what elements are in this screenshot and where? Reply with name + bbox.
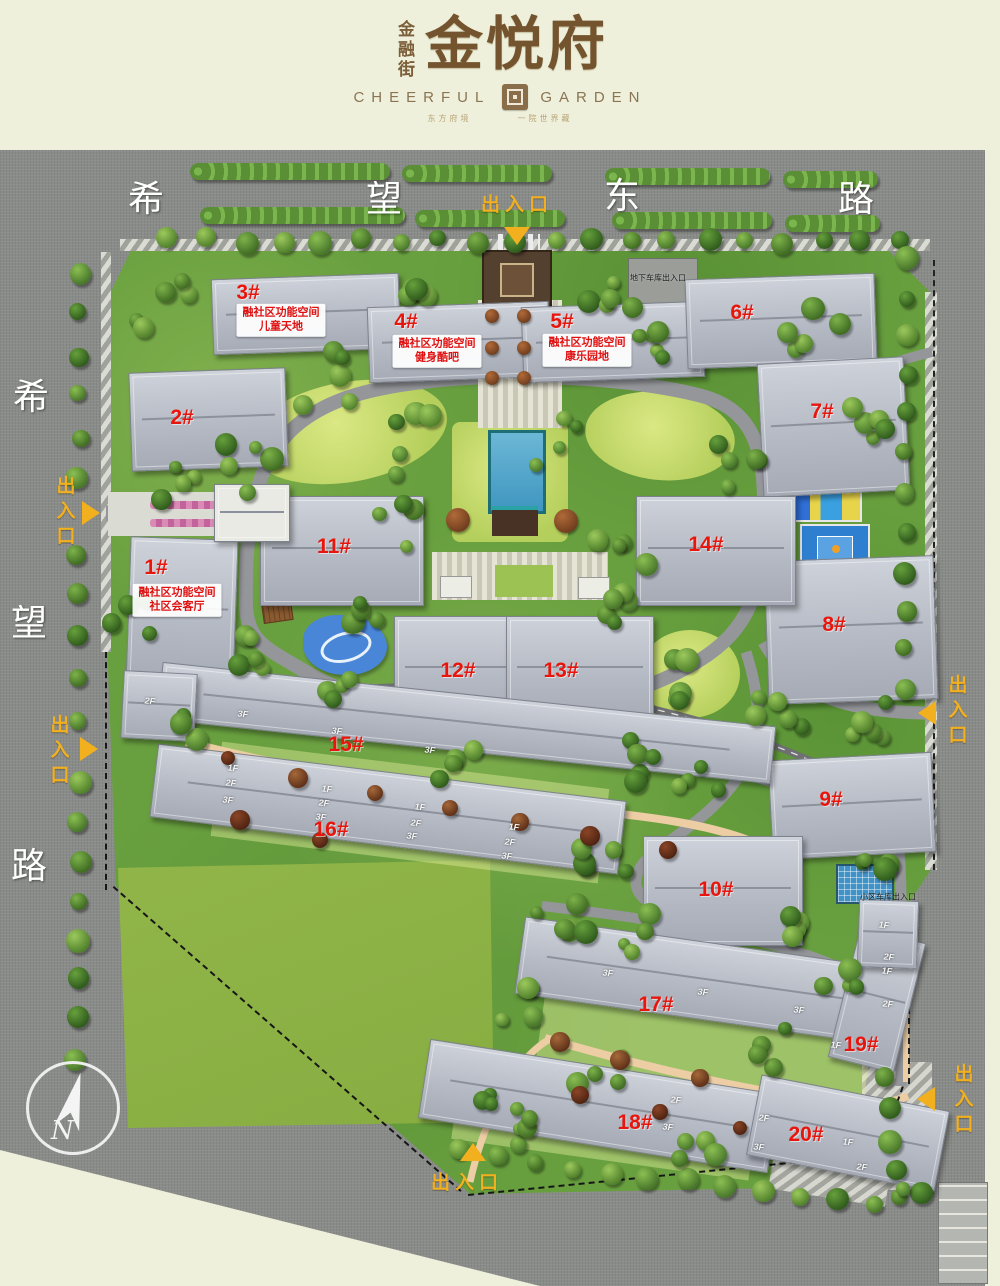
planter-large [446, 508, 470, 532]
entrance-arrow-left-icon [917, 1087, 935, 1111]
building-label-10: 10# [698, 878, 733, 902]
tree [886, 1160, 907, 1181]
tree [529, 458, 543, 472]
building-label-3: 3# [236, 281, 259, 305]
garage-entrance-label: 地下车库出入口 [630, 273, 686, 284]
tree [495, 1013, 509, 1027]
floor-label: 3F [753, 1142, 766, 1153]
parking-stalls [938, 1182, 988, 1284]
tree [170, 712, 193, 735]
tree [175, 475, 191, 491]
entrance-arrow-down-icon [504, 227, 530, 245]
tree [400, 540, 413, 553]
tree [779, 710, 797, 728]
tree [635, 553, 658, 576]
tree [612, 538, 626, 552]
building-label-19: 19# [843, 1033, 878, 1057]
floor-label: 3F [222, 795, 235, 806]
floor-label: 1F [881, 966, 894, 977]
central-pool [488, 430, 546, 514]
tree [570, 420, 583, 433]
tree [897, 601, 918, 622]
tree [721, 452, 736, 467]
floor-label: 1F [414, 802, 427, 813]
floor-label: 3F [602, 968, 615, 979]
compass-north-letter: N [51, 1116, 74, 1146]
tree [791, 1188, 809, 1206]
tree [248, 651, 264, 667]
entrance-label: 出入口 [45, 715, 72, 790]
tree [548, 232, 565, 249]
floor-label: 2F [504, 837, 517, 848]
tree [873, 857, 897, 881]
hedge-row [402, 165, 552, 182]
road-name-char: 希 [128, 170, 164, 222]
entrance-arrow-left-icon [918, 701, 936, 725]
amenity-line2: 社区会客厅 [139, 600, 216, 614]
brand-logo: 金融街 金悦府 CHEERFUL GARDEN 东方府境 一院世界藏 [0, 14, 1000, 124]
floor-label: 3F [406, 831, 419, 842]
planter-pot [517, 341, 531, 355]
floor-label: 2F [318, 798, 331, 809]
tree [659, 841, 677, 859]
tree [70, 263, 92, 285]
floor-label: 1F [830, 1040, 843, 1051]
right-margin [985, 150, 1000, 1286]
tree [151, 489, 172, 510]
tree [580, 228, 602, 250]
tree [329, 364, 352, 387]
tree [752, 1180, 774, 1202]
tree [70, 893, 86, 909]
amenity-box: 融社区功能空间健身酷吧 [393, 335, 482, 368]
tree [388, 414, 404, 430]
tree [610, 1074, 626, 1090]
tree [351, 228, 371, 248]
tree [826, 1188, 848, 1210]
floor-label: 3F [662, 1122, 675, 1133]
tree [671, 1150, 688, 1167]
brand-seal-icon [502, 84, 528, 110]
entrance-arrow-up-icon [460, 1143, 486, 1161]
tree [603, 589, 623, 609]
building-label-1: 1# [144, 556, 167, 580]
tree [709, 435, 728, 454]
tree [156, 227, 177, 248]
tree [69, 385, 86, 402]
building-label-20: 20# [788, 1123, 823, 1147]
garage-entrance-label: 小区车库出入口 [860, 892, 916, 903]
tree [230, 810, 250, 830]
tree [442, 800, 458, 816]
floor-label: 2F [670, 1095, 683, 1106]
building-label-11: 11# [317, 535, 351, 559]
brand-tagline-left: 东方府境 [428, 113, 472, 124]
tree [647, 321, 669, 343]
entrance-label: 出入口 [51, 476, 78, 551]
tree [215, 433, 238, 456]
entrance-label: 出入口 [949, 1064, 976, 1139]
tree [671, 778, 687, 794]
tree [341, 671, 358, 688]
hedge-row [190, 163, 390, 180]
tree [392, 446, 408, 462]
tree [875, 419, 895, 439]
tree [838, 958, 862, 982]
floor-label: 3F [315, 812, 328, 823]
entrance-label: 出入口 [481, 190, 553, 217]
floor-label: 2F [225, 778, 238, 789]
amenity-box: 融社区功能空间社区会客厅 [133, 584, 222, 617]
tree [186, 728, 209, 751]
tree [632, 329, 646, 343]
planter-pot [485, 371, 499, 385]
tree [155, 282, 176, 303]
tree [521, 1110, 538, 1127]
tree [801, 297, 825, 321]
tree [308, 231, 331, 254]
entrance-arrow-right-icon [80, 737, 98, 761]
amenity-line2: 儿童天地 [243, 320, 320, 334]
tree [67, 625, 88, 646]
tree [878, 1130, 902, 1154]
amenity-line1: 融社区功能空间 [549, 336, 626, 350]
road-name-char: 望 [11, 594, 47, 646]
tree [418, 404, 441, 427]
tree [464, 740, 484, 760]
entrance-arrow-right-icon [82, 501, 100, 525]
lawn-circle-southeast [640, 630, 740, 718]
building-label-6: 6# [730, 301, 753, 325]
tree [816, 232, 833, 249]
tree [878, 695, 893, 710]
tree [635, 1167, 658, 1190]
road-name-char: 东 [604, 167, 640, 219]
tree [814, 977, 833, 996]
building-label-2: 2# [170, 406, 193, 430]
amenity-line1: 融社区功能空间 [139, 586, 216, 600]
planter-large [554, 509, 578, 533]
floor-label: 1F [508, 822, 521, 833]
floor-label: 2F [856, 1162, 869, 1173]
tree [898, 523, 917, 542]
tree [444, 755, 461, 772]
tree [69, 348, 88, 367]
tree [746, 449, 766, 469]
brand-name-side: 金融街 [392, 20, 417, 80]
building-label-13: 13# [543, 659, 578, 683]
planter-pot [485, 341, 499, 355]
floor-label: 1F [878, 920, 891, 931]
tree [67, 812, 87, 832]
road-name-char: 路 [838, 170, 874, 222]
building-label-15: 15# [328, 733, 363, 757]
tree [895, 483, 914, 502]
tree [67, 583, 88, 604]
tree [69, 303, 86, 320]
tree [554, 919, 575, 940]
tree [196, 227, 216, 247]
tree [699, 228, 722, 251]
axis-lawn [495, 565, 553, 597]
brand-name-main: 金悦府 [425, 14, 608, 75]
tree [645, 749, 661, 765]
building-label-7: 7# [810, 400, 833, 424]
tree [638, 903, 661, 926]
tree [778, 1022, 792, 1036]
tree [721, 479, 736, 494]
brand-tagline-right: 一院世界藏 [518, 113, 573, 124]
tree [910, 1182, 932, 1204]
boundary-dash-left [105, 652, 107, 890]
tree [622, 297, 643, 318]
sidewalk-left [101, 252, 111, 652]
planter-pot [517, 371, 531, 385]
tree [517, 977, 538, 998]
tree [866, 1196, 883, 1213]
amenity-box: 融社区功能空间康乐园地 [543, 334, 632, 367]
tree [429, 230, 445, 246]
amenity-line2: 康乐园地 [549, 350, 626, 364]
tree [430, 770, 449, 789]
tree [624, 944, 639, 959]
tree [239, 484, 256, 501]
building-label-17: 17# [638, 993, 673, 1017]
tree [768, 692, 787, 711]
floor-label: 2F [882, 999, 895, 1010]
tree [488, 1146, 507, 1165]
tree [897, 402, 916, 421]
tree [467, 232, 488, 253]
tree [527, 1154, 544, 1171]
tree [675, 648, 699, 672]
tree [829, 313, 851, 335]
pavilion-west [440, 576, 472, 598]
pool-pergola [492, 506, 538, 536]
compass: N [26, 1061, 120, 1155]
tree [260, 447, 284, 471]
tree [899, 291, 915, 307]
tree [530, 906, 543, 919]
tree [72, 430, 89, 447]
tree [394, 495, 412, 513]
tree [896, 324, 918, 346]
tree [849, 979, 864, 994]
tree [677, 1168, 698, 1189]
amenity-line1: 融社区功能空间 [399, 337, 476, 351]
tree [782, 926, 803, 947]
tree [485, 1097, 499, 1111]
tree [849, 230, 870, 251]
floor-label: 3F [697, 987, 710, 998]
tree [607, 615, 622, 630]
floor-label: 3F [237, 709, 250, 720]
building-label-9: 9# [819, 788, 842, 812]
floor-label: 3F [331, 726, 344, 737]
tree [288, 768, 308, 788]
building-label-5: 5# [550, 310, 573, 334]
tree [764, 1058, 783, 1077]
tree [607, 276, 620, 289]
tree [274, 232, 295, 253]
tree [748, 1045, 767, 1064]
tree [574, 920, 598, 944]
tree [564, 1161, 581, 1178]
tree [523, 1006, 543, 1026]
amenity-line1: 融社区功能空间 [243, 306, 320, 320]
tree [587, 529, 609, 551]
road-name-char: 希 [13, 368, 49, 420]
master-plan: 希望东路希望路1#2#3#4#5#6#7#8#9#10#11#12#13#14#… [0, 0, 1000, 1286]
road-name-char: 望 [366, 170, 402, 222]
tree [751, 690, 766, 705]
floor-label: 2F [883, 952, 896, 963]
tree [550, 1032, 569, 1051]
tree [102, 613, 122, 633]
building-label-18: 18# [617, 1111, 652, 1135]
tree [652, 1104, 667, 1119]
planter-pot [485, 309, 499, 323]
floor-label: 2F [410, 818, 423, 829]
tree [895, 639, 912, 656]
tree [66, 929, 90, 953]
tree [249, 441, 262, 454]
amenity-line2: 健身酷吧 [399, 351, 476, 365]
tree [388, 466, 404, 482]
tree [893, 562, 916, 585]
building-label-12: 12# [440, 659, 475, 683]
brand-en-cheerful: CHEERFUL [353, 89, 490, 106]
tree [605, 841, 622, 858]
tree [610, 1050, 630, 1070]
tree [335, 350, 350, 365]
floor-label: 3F [424, 745, 437, 756]
tree [636, 923, 653, 940]
building-label-4: 4# [394, 310, 417, 334]
floor-label: 2F [144, 696, 157, 707]
tree [691, 1069, 708, 1086]
tree [67, 1006, 89, 1028]
road-name-char: 路 [11, 837, 47, 889]
entrance-label: 出入口 [431, 1168, 503, 1195]
floor-label: 1F [842, 1137, 855, 1148]
floor-label: 1F [321, 784, 334, 795]
tree [670, 691, 689, 710]
floor-label: 1F [227, 763, 240, 774]
tree [851, 711, 873, 733]
entrance-label: 出入口 [943, 675, 970, 750]
tree [142, 626, 157, 641]
tree [68, 967, 89, 988]
amenity-box: 融社区功能空间儿童天地 [237, 304, 326, 337]
tree [236, 232, 259, 255]
tree [842, 397, 863, 418]
tree [220, 457, 238, 475]
floor-label: 3F [501, 851, 514, 862]
tree [580, 826, 599, 845]
tree [895, 443, 912, 460]
tree [174, 273, 190, 289]
tree [618, 864, 633, 879]
building-label-14: 14# [688, 533, 723, 557]
brand-en-garden: GARDEN [540, 89, 646, 106]
planter-pot [517, 309, 531, 323]
tree [896, 1182, 909, 1195]
tree [879, 1097, 901, 1119]
floor-label: 2F [758, 1113, 771, 1124]
floor-label: 3F [793, 1005, 806, 1016]
building-label-8: 8# [822, 613, 845, 637]
